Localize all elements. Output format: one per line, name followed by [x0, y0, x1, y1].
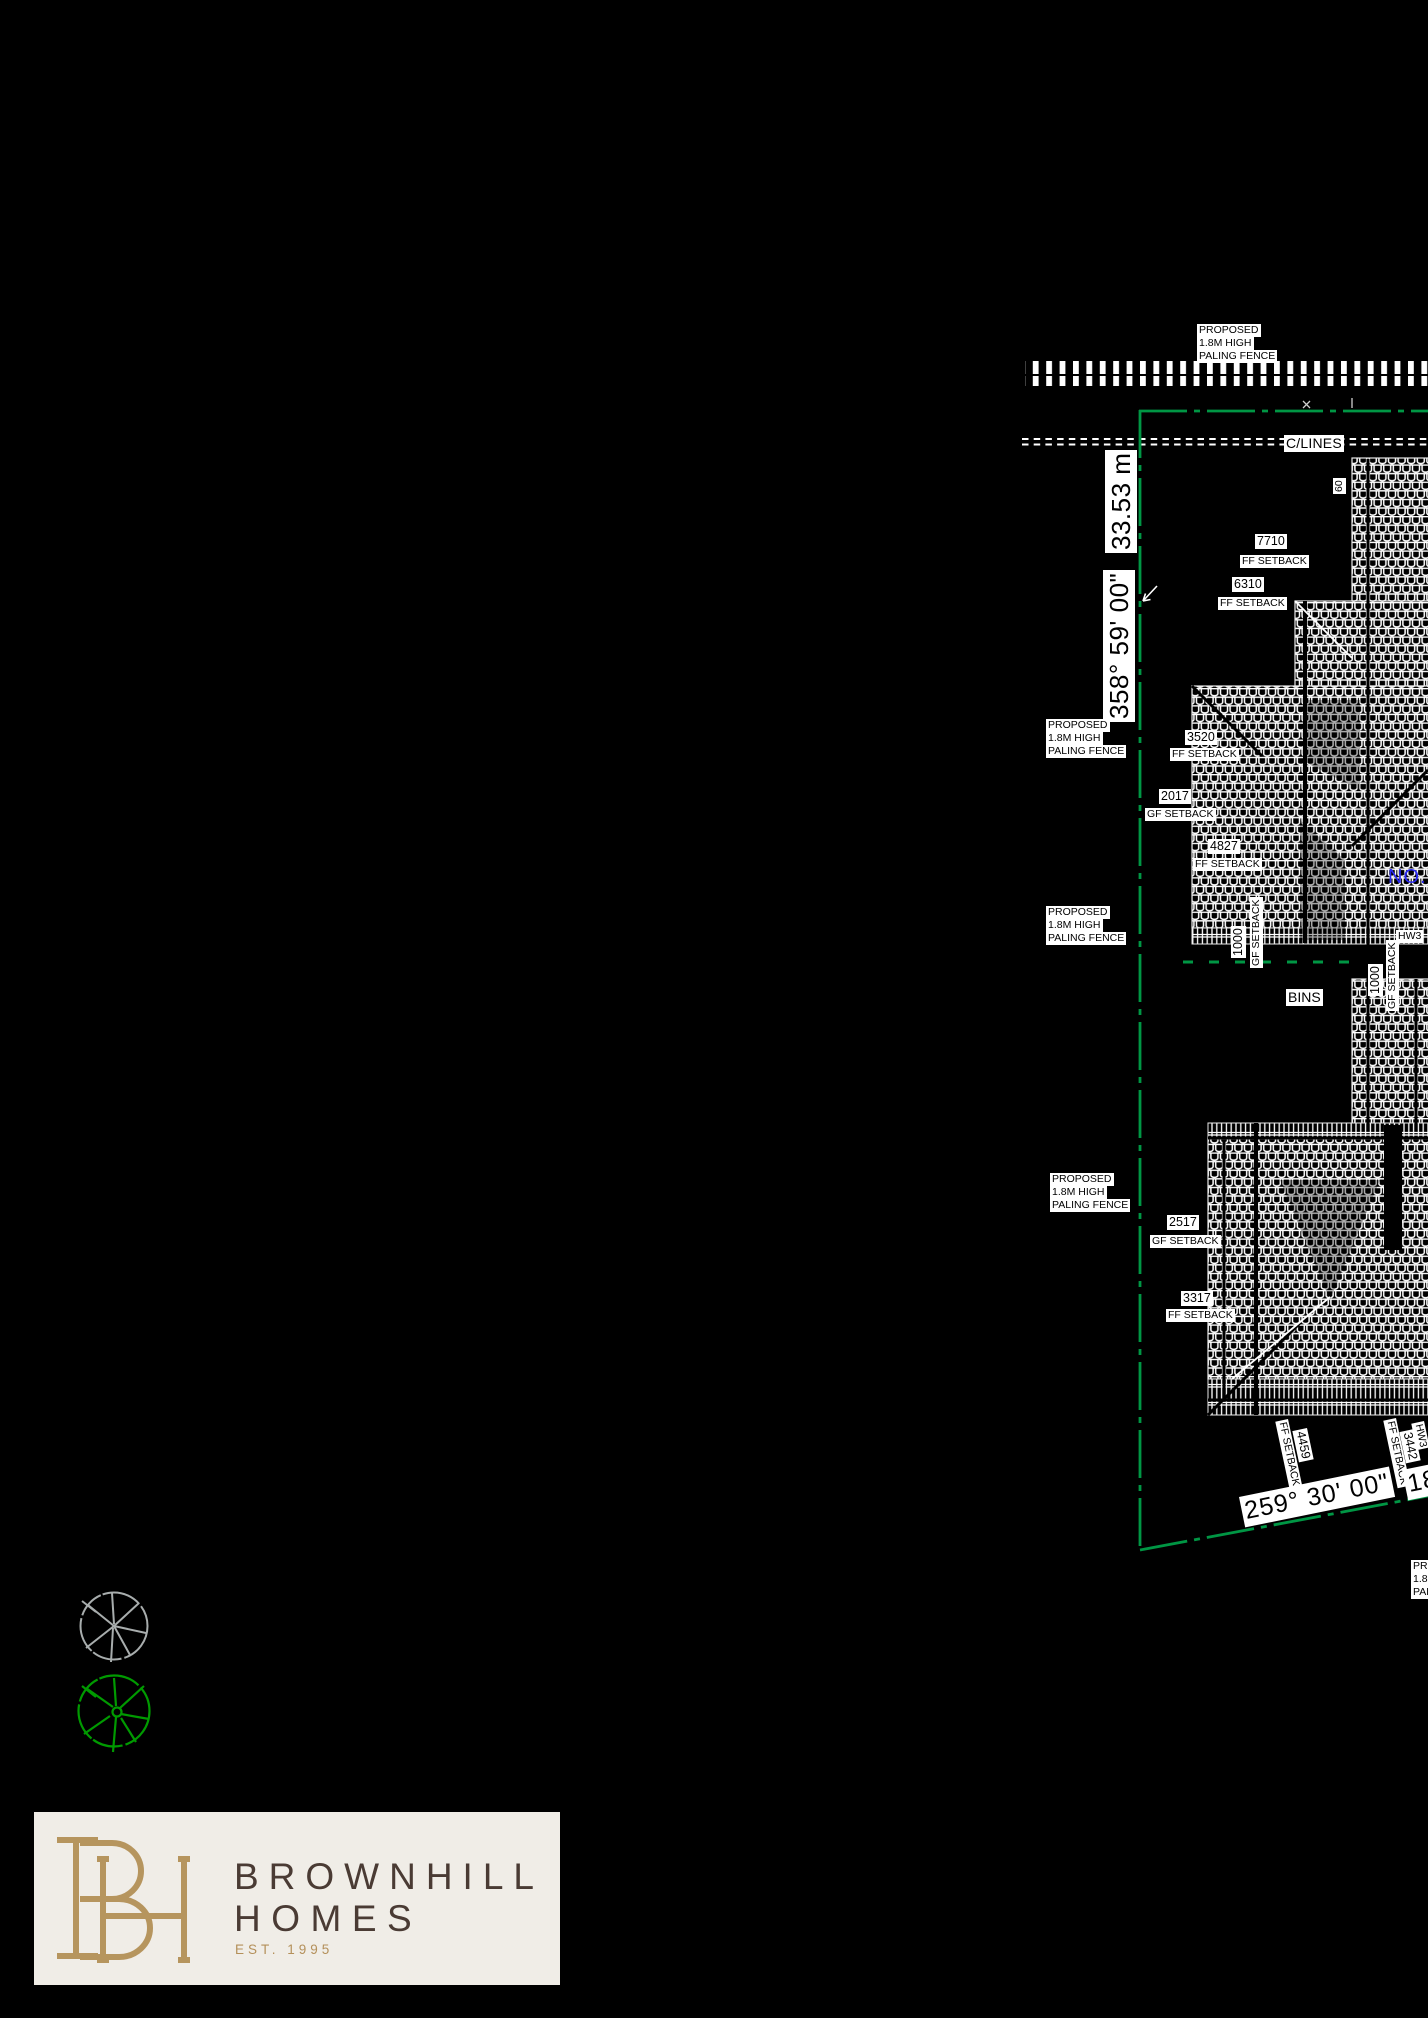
- svg-text:BROWNHILL: BROWNHILL: [234, 1856, 544, 1897]
- svg-text:HOMES: HOMES: [234, 1898, 422, 1939]
- svg-text:EST. 1995: EST. 1995: [235, 1942, 333, 1957]
